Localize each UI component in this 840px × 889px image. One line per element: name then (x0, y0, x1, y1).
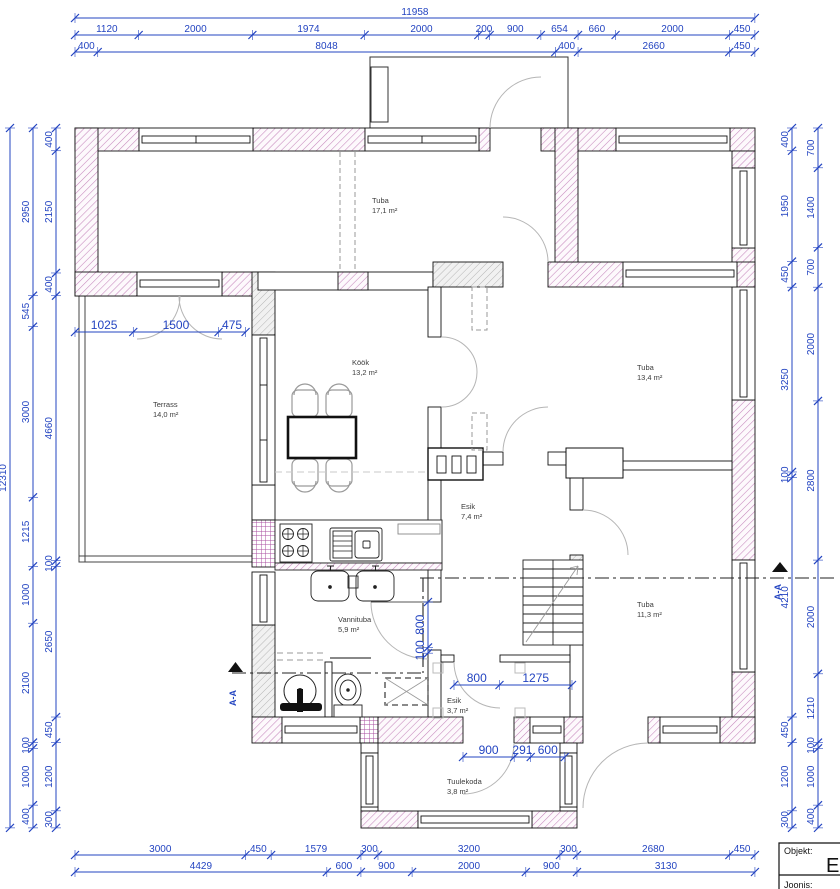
dimension-value: 1000 (21, 765, 32, 788)
dimension-value: 1500 (163, 318, 190, 332)
title-block-joonis-label: Joonis: (784, 880, 813, 889)
dimension-value: 2680 (642, 844, 665, 855)
dimension-value: 1025 (91, 318, 118, 332)
dimension-value: 600 (538, 743, 558, 757)
dimension-value: 200 (476, 24, 493, 35)
dimension-value: 1000 (21, 583, 32, 606)
dimension-value: 900 (479, 743, 499, 757)
dimension-value: 100 (44, 555, 55, 572)
dimension-value: 1275 (522, 671, 549, 685)
dimension-value: 4660 (44, 417, 55, 440)
dimension-value: 450 (44, 721, 55, 738)
dimension-value: 3130 (655, 861, 678, 872)
dimension-value: 100 (21, 737, 32, 754)
dimension-value: 700 (806, 139, 817, 156)
dimension-value: 800 (467, 671, 487, 685)
dimension-value: 2800 (806, 469, 817, 492)
section-label-left: A-A (228, 690, 238, 706)
dimension-value: 545 (21, 302, 32, 319)
dimension-value: 1200 (780, 765, 791, 788)
dimension-value: 400 (558, 41, 575, 52)
dimension-value: 2000 (410, 24, 433, 35)
floor-plan-sheet: A-A A-A Tuba17,1 m² Köök13,2 m² Tuba13,4… (0, 0, 840, 889)
dimension-value: 2100 (21, 671, 32, 694)
stairs-symbol (523, 560, 583, 645)
dimension-value: 2000 (184, 24, 207, 35)
dimension-value: 450 (734, 41, 751, 52)
dimension-value: 800 (413, 614, 427, 634)
dimension-value: 3200 (458, 844, 481, 855)
dimension-value: 475 (222, 318, 242, 332)
dimension-value: 4429 (190, 861, 213, 872)
dimension-value: 900 (543, 861, 560, 872)
dimension-value: 2000 (806, 605, 817, 628)
dimension-value: 3250 (780, 368, 791, 391)
dimension-value: 400 (44, 131, 55, 148)
dimension-value: 1120 (96, 24, 118, 35)
dimension-value: 100 (413, 640, 427, 660)
dimension-value: 600 (336, 861, 353, 872)
dimension-value: 300 (780, 811, 791, 828)
kitchen-counter (275, 520, 442, 570)
dimension-value: 100 (780, 466, 791, 483)
dimension-value: 300 (44, 811, 55, 828)
dimension-value: 3000 (149, 844, 172, 855)
dimension-value: 400 (780, 131, 791, 148)
dimension-value: 1000 (806, 765, 817, 788)
dimension-value: 2000 (806, 332, 817, 355)
dimension-value: 8048 (315, 41, 338, 52)
dimension-value: 900 (378, 861, 395, 872)
dimension-value: 291 (512, 743, 532, 757)
title-block-objekt-label: Objekt: (784, 846, 813, 856)
dimension-value: 450 (780, 721, 791, 738)
dimension-value: 450 (780, 266, 791, 283)
wardrobe-symbol (566, 448, 623, 478)
dimension-value: 11958 (401, 7, 429, 18)
dimension-value: 660 (588, 24, 605, 35)
dimension-value: 2000 (661, 24, 684, 35)
dimension-value: 1974 (297, 24, 320, 35)
toilet-symbol (334, 674, 362, 717)
dimension-value: 700 (806, 259, 817, 276)
floor-plan-canvas: A-A A-A Tuba17,1 m² Köök13,2 m² Tuba13,4… (0, 0, 840, 889)
dimension-value: 654 (551, 24, 568, 35)
dimension-value: 450 (734, 24, 751, 35)
dimension-value: 1200 (44, 765, 55, 788)
dimension-value: 1210 (806, 697, 817, 720)
dimension-value: 100 (806, 737, 817, 754)
dimension-value: 2000 (458, 861, 481, 872)
dimension-value: 400 (21, 808, 32, 825)
room-label-terrass: Terrass14,0 m² (153, 400, 179, 419)
dimension-value: 1579 (305, 844, 328, 855)
dimension-value: 4210 (780, 586, 791, 609)
dimension-value: 2150 (44, 200, 55, 223)
dimension-value: 300 (361, 844, 378, 855)
dimension-value: 400 (78, 41, 95, 52)
dimension-value: 1400 (806, 196, 817, 219)
dimension-value: 1950 (780, 195, 791, 218)
dimension-value: 400 (806, 808, 817, 825)
dimension-value: 400 (44, 276, 55, 293)
dimension-value: 450 (734, 844, 751, 855)
dimension-value: 12310 (0, 464, 9, 492)
dimension-value: 2650 (44, 630, 55, 653)
dimension-value: 1215 (21, 520, 32, 543)
dimension-value: 2950 (21, 200, 32, 223)
dimension-value: 300 (560, 844, 577, 855)
dimension-value: 450 (250, 844, 267, 855)
dimension-value: 3000 (21, 400, 32, 423)
ventilation-box-symbol (428, 448, 483, 480)
title-block-objekt-value: E (826, 855, 839, 877)
dimension-value: 2660 (643, 41, 666, 52)
dimension-value: 900 (507, 24, 524, 35)
